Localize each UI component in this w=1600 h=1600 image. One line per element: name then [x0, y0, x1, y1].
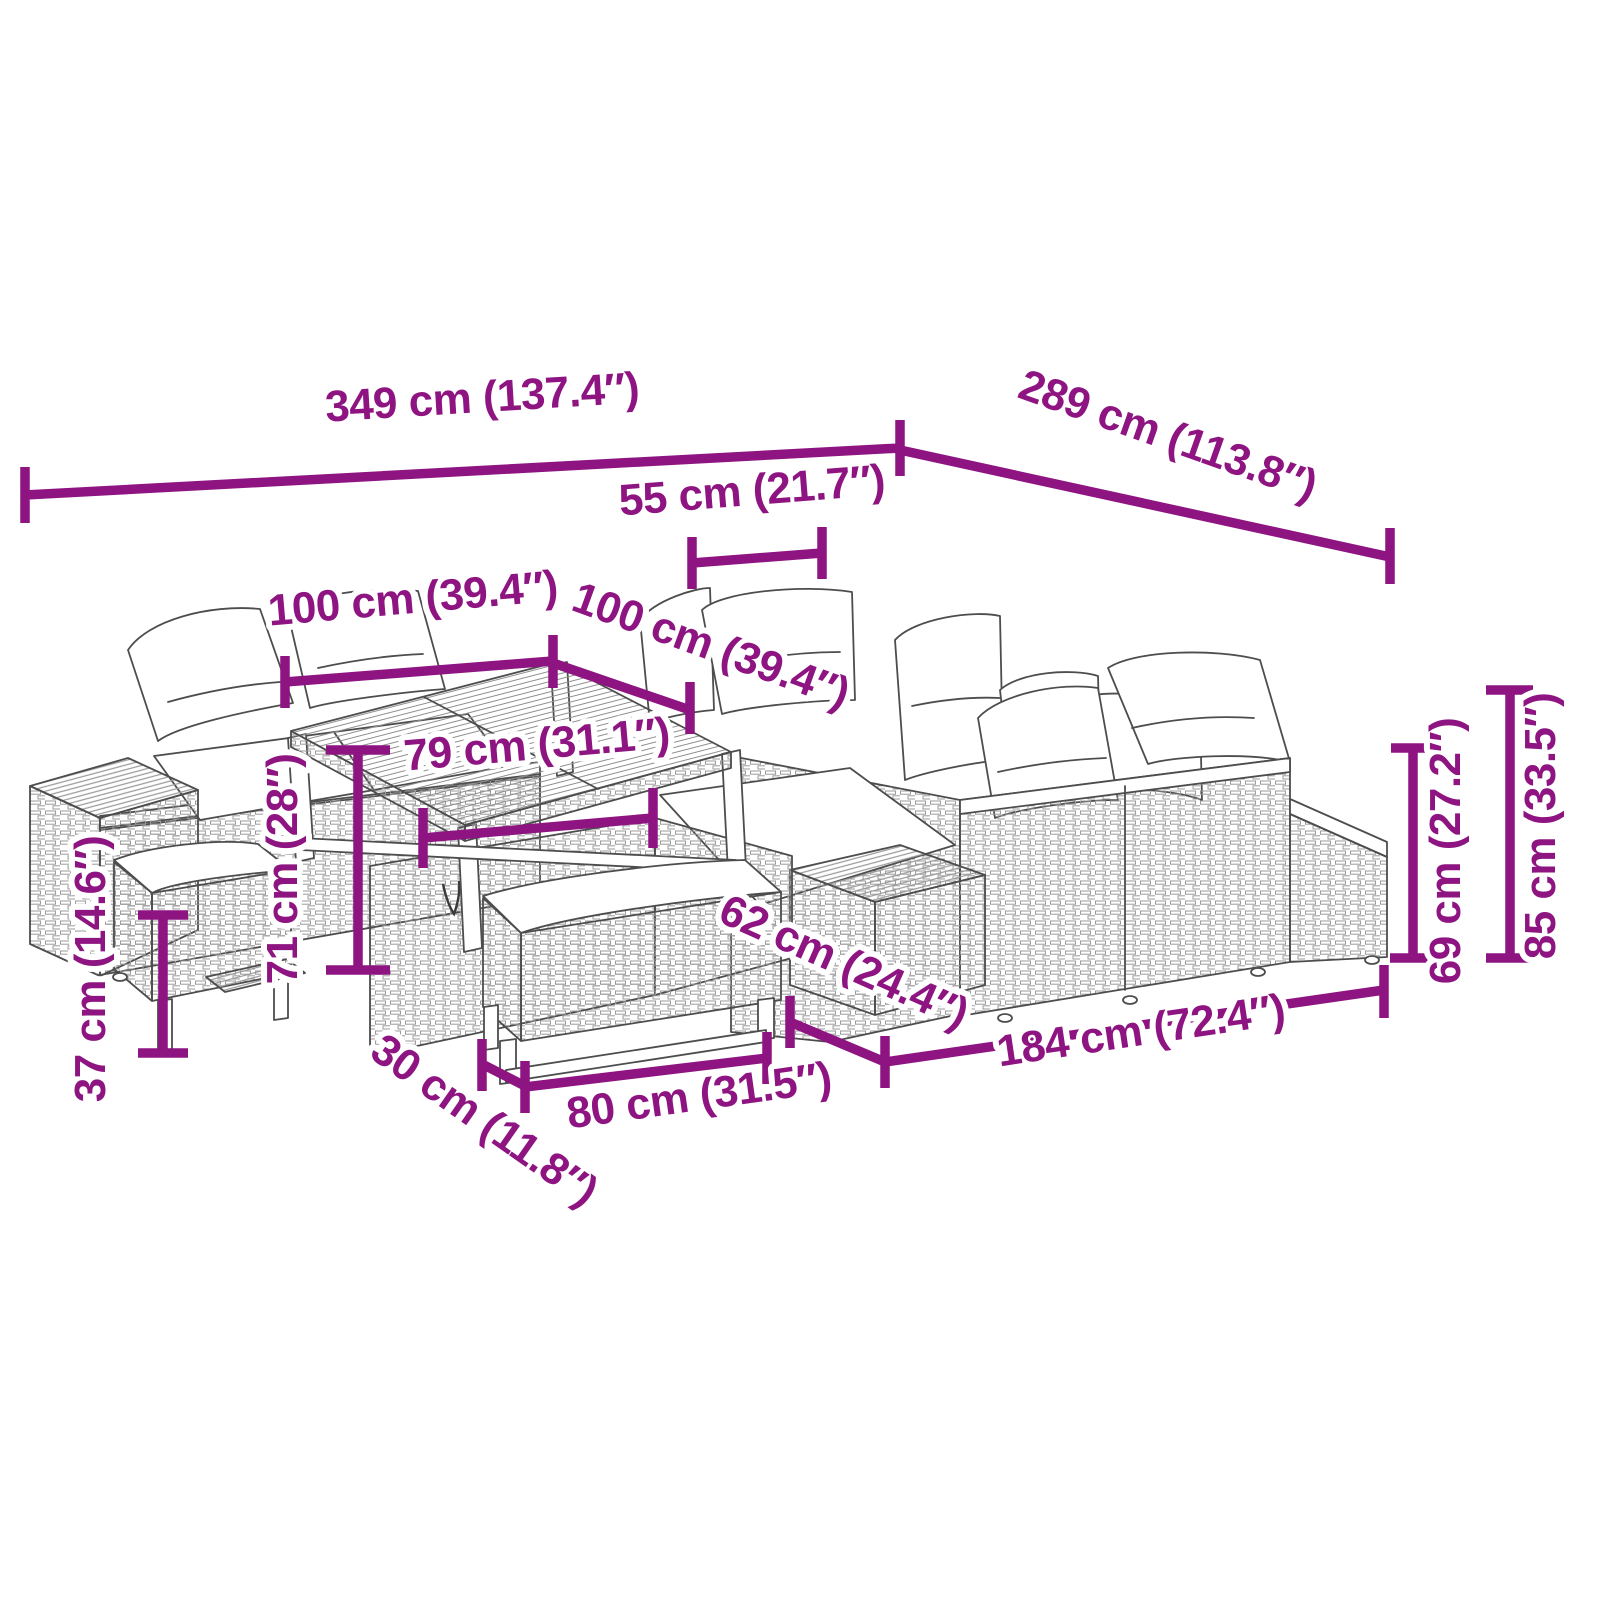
- product-image: 349 cm (137.4″) 289 cm (113.8″) 55 cm (2…: [0, 0, 1600, 1600]
- dim-bench-seat-height-label: 37 cm (14.6″): [66, 836, 115, 1103]
- dim-back-height: 85 cm (33.5″): [1486, 690, 1565, 959]
- dim-armrest-height: 69 cm (27.2″): [1390, 718, 1470, 985]
- foot: [1123, 996, 1137, 1004]
- dim-back-cushion-width: 55 cm (21.7″): [617, 456, 887, 589]
- dim-overall-width-label: 349 cm (137.4″): [324, 363, 641, 431]
- dim-table-height-label: 71 cm (28″): [258, 754, 307, 985]
- dimension-diagram: 349 cm (137.4″) 289 cm (113.8″) 55 cm (2…: [0, 0, 1600, 1600]
- dim-overall-depth: 289 cm (113.8″): [900, 360, 1390, 584]
- dim-back-height-label: 85 cm (33.5″): [1516, 693, 1565, 960]
- foot: [1365, 956, 1379, 964]
- foot: [998, 1014, 1012, 1022]
- dim-back-cushion-width-label: 55 cm (21.7″): [617, 456, 887, 526]
- back-cushion: [128, 608, 293, 741]
- dim-armrest-height-label: 69 cm (27.2″): [1421, 718, 1470, 985]
- dim-back-cushion-width-line: [692, 527, 822, 589]
- foot: [113, 973, 127, 981]
- foot: [1251, 968, 1265, 976]
